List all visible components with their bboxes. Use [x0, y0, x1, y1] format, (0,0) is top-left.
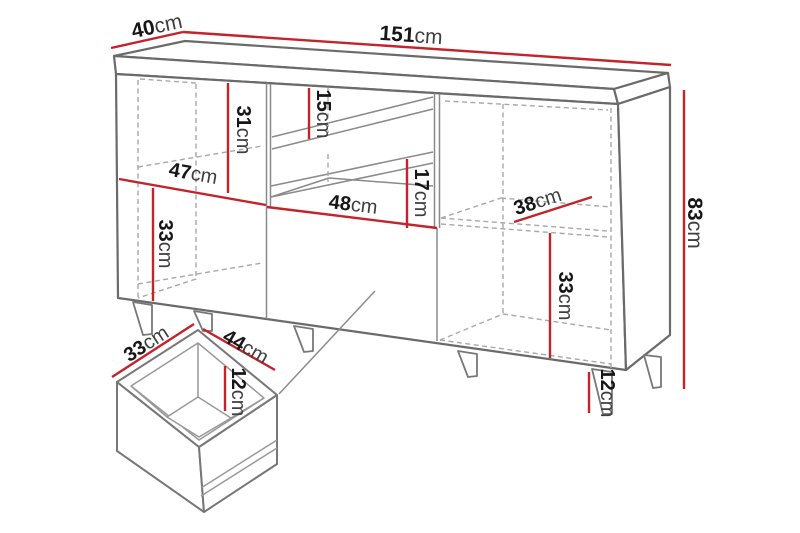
dim-unit: cm	[683, 221, 706, 249]
diagram-canvas: 40cm151cm83cm31cm47cm33cm15cm17cm48cm38c…	[0, 0, 800, 533]
dim-unit: cm	[410, 191, 432, 218]
leg	[194, 311, 212, 331]
dim-unit: cm	[154, 242, 176, 269]
dim-unit: cm	[414, 24, 444, 49]
dim-label-left-upper-compartment-height: 31cm	[232, 106, 254, 155]
dim-label-drawer-inner-height: 12cm	[227, 368, 249, 417]
dim-unit: cm	[554, 294, 576, 321]
dim-unit: cm	[227, 390, 249, 417]
leg	[458, 351, 477, 377]
dim-value: 33	[554, 272, 576, 294]
dim-unit: cm	[596, 391, 618, 418]
leg	[294, 326, 313, 352]
dim-label-niche-upper-height: 15cm	[312, 90, 334, 139]
right-side-face	[618, 87, 670, 370]
dim-unit: cm	[312, 112, 334, 139]
dim-label-right-compartment-height: 33cm	[554, 272, 576, 321]
dim-value: 12	[596, 369, 618, 391]
dim-unit: cm	[232, 128, 254, 155]
leg	[644, 355, 661, 388]
dim-label-left-lower-compartment-height: 33cm	[154, 220, 176, 269]
dim-label-leg-height: 12cm	[596, 369, 618, 418]
dim-value: 17	[410, 169, 432, 191]
dim-unit: cm	[189, 163, 219, 189]
sideboard-dimension-diagram: 40cm151cm83cm31cm47cm33cm15cm17cm48cm38c…	[0, 0, 800, 533]
dim-value: 15	[312, 90, 334, 112]
dim-label-width: 151cm	[379, 21, 443, 48]
dim-label-depth: 40cm	[129, 9, 184, 42]
dim-value: 33	[154, 220, 176, 242]
dim-value: 48	[327, 191, 352, 216]
dim-unit: cm	[350, 194, 379, 219]
dim-label-niche-lower-height: 17cm	[410, 169, 432, 218]
dim-value: 12	[227, 368, 249, 390]
dim-value: 151	[379, 21, 416, 46]
dim-value: 83	[683, 197, 706, 220]
dim-value: 31	[232, 106, 254, 128]
dim-label-height: 83cm	[683, 197, 706, 248]
